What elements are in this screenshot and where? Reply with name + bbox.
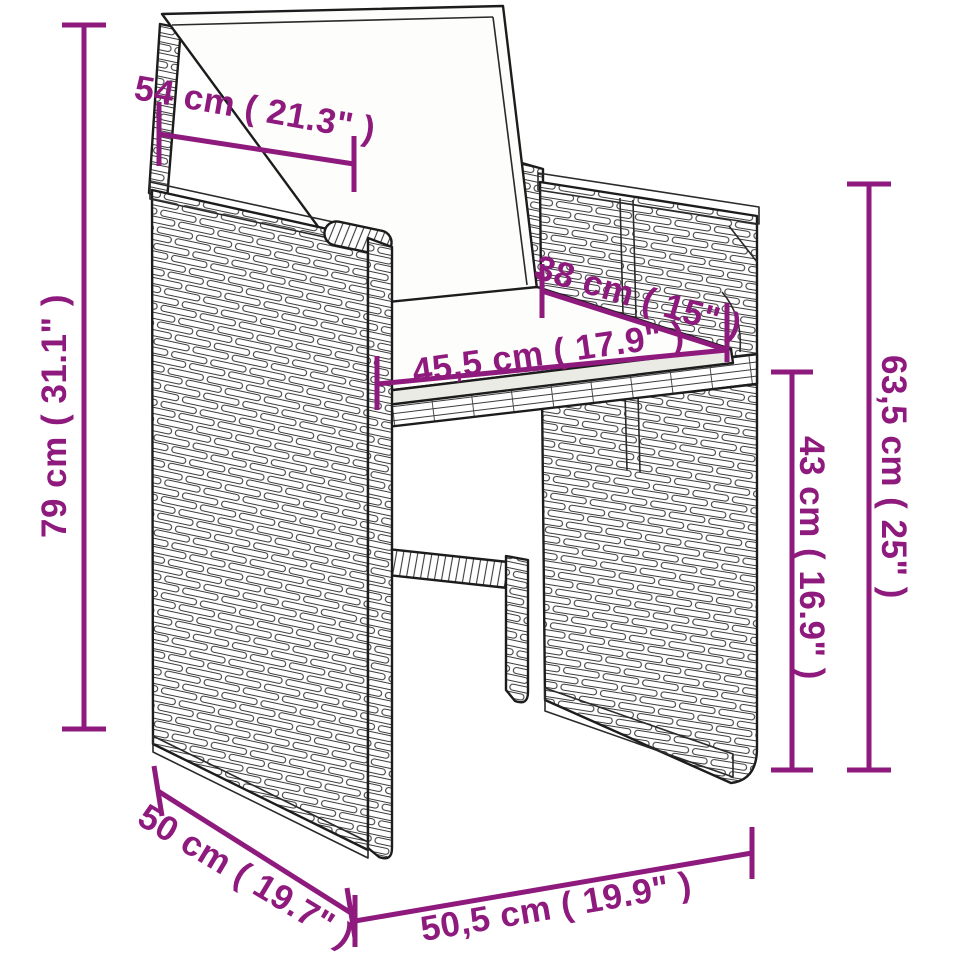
front-left-leg	[368, 238, 392, 858]
dimension-base-width: 50,5 cm ( 19.9" )	[355, 827, 752, 949]
chair-illustration	[149, 6, 759, 858]
dimension-label: 79 cm ( 31.1" )	[35, 294, 74, 538]
dimension-backrest-height: 63,5 cm ( 25" )	[847, 184, 913, 770]
dimension-diagram: 54 cm ( 21.3" ) 79 cm ( 31.1" ) 38 cm ( …	[0, 0, 955, 955]
dimension-total-height: 79 cm ( 31.1" )	[35, 25, 106, 729]
front-right-leg	[506, 556, 528, 702]
front-stretcher-rail	[378, 548, 508, 588]
dimension-label: 63,5 cm ( 25" )	[874, 355, 913, 599]
dimension-label: 50,5 cm ( 19.9" )	[418, 864, 695, 949]
dimension-seat-height: 43 cm ( 16.9" )	[771, 372, 831, 770]
chair-dimension-illustration: 54 cm ( 21.3" ) 79 cm ( 31.1" ) 38 cm ( …	[0, 0, 955, 955]
dimension-label: 43 cm ( 16.9" )	[792, 436, 831, 680]
